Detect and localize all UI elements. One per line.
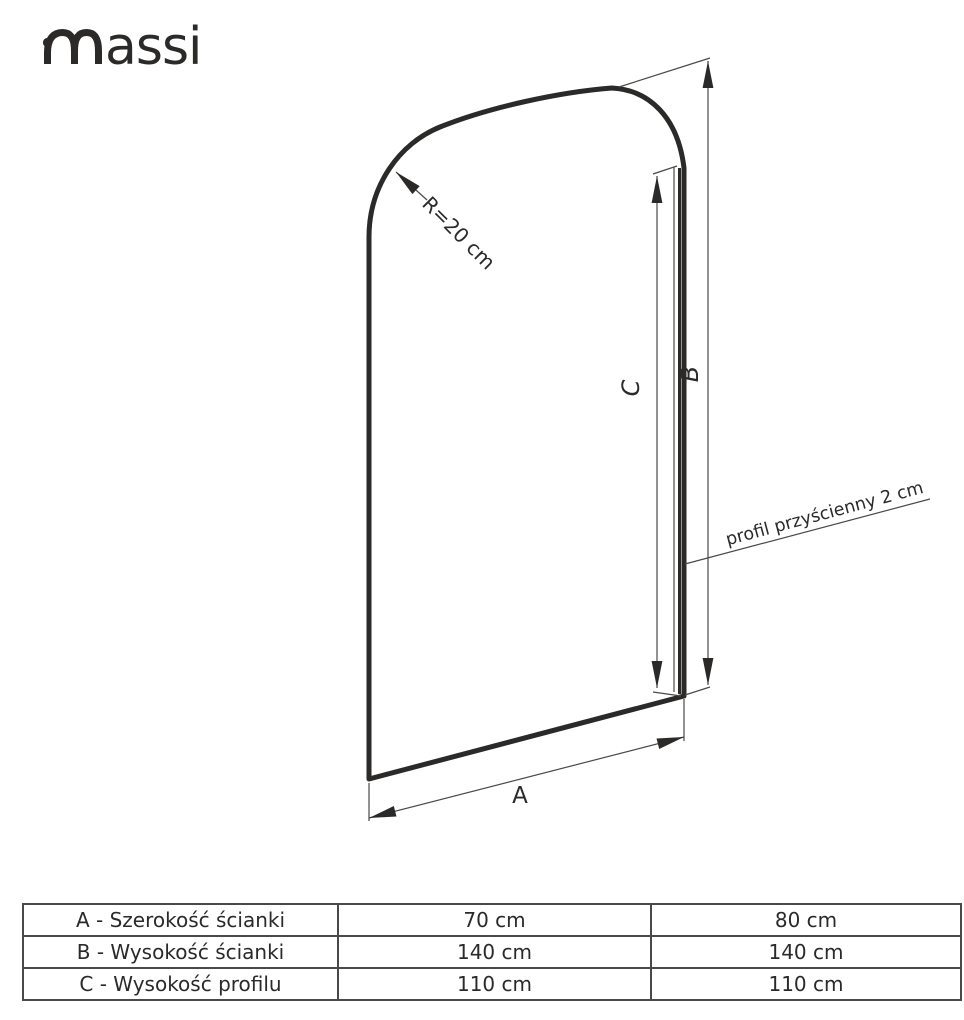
spec-b-size1: 140 cm [338, 936, 651, 968]
glass-panel-outline [369, 88, 684, 779]
dim-c-label: C [617, 379, 645, 396]
table-row: B - Wysokość ścianki 140 cm 140 cm [23, 936, 961, 968]
dim-b-extension-top [619, 58, 710, 87]
table-row: A - Szerokość ścianki 70 cm 80 cm [23, 904, 961, 936]
profile-label: profil przyścienny 2 cm [724, 478, 926, 550]
dim-b-label: B [676, 366, 704, 382]
spec-a-size1: 70 cm [338, 904, 651, 936]
spec-c-size2: 110 cm [651, 968, 961, 1000]
spec-c-size1: 110 cm [338, 968, 651, 1000]
spec-b-size2: 140 cm [651, 936, 961, 968]
dimension-diagram: A B C R=20 cm profil przyścienny 2 cm [0, 0, 964, 880]
table-row: C - Wysokość profilu 110 cm 110 cm [23, 968, 961, 1000]
spec-a-size2: 80 cm [651, 904, 961, 936]
spec-label-c: C - Wysokość profilu [23, 968, 338, 1000]
product-dimension-sheet: assi A B C R=20 cm profil [0, 0, 964, 1020]
spec-table: A - Szerokość ścianki 70 cm 80 cm B - Wy… [22, 903, 962, 1001]
spec-label-a: A - Szerokość ścianki [23, 904, 338, 936]
dim-a-label: A [512, 783, 528, 809]
spec-label-b: B - Wysokość ścianki [23, 936, 338, 968]
dim-b-extension-bottom [685, 687, 710, 695]
